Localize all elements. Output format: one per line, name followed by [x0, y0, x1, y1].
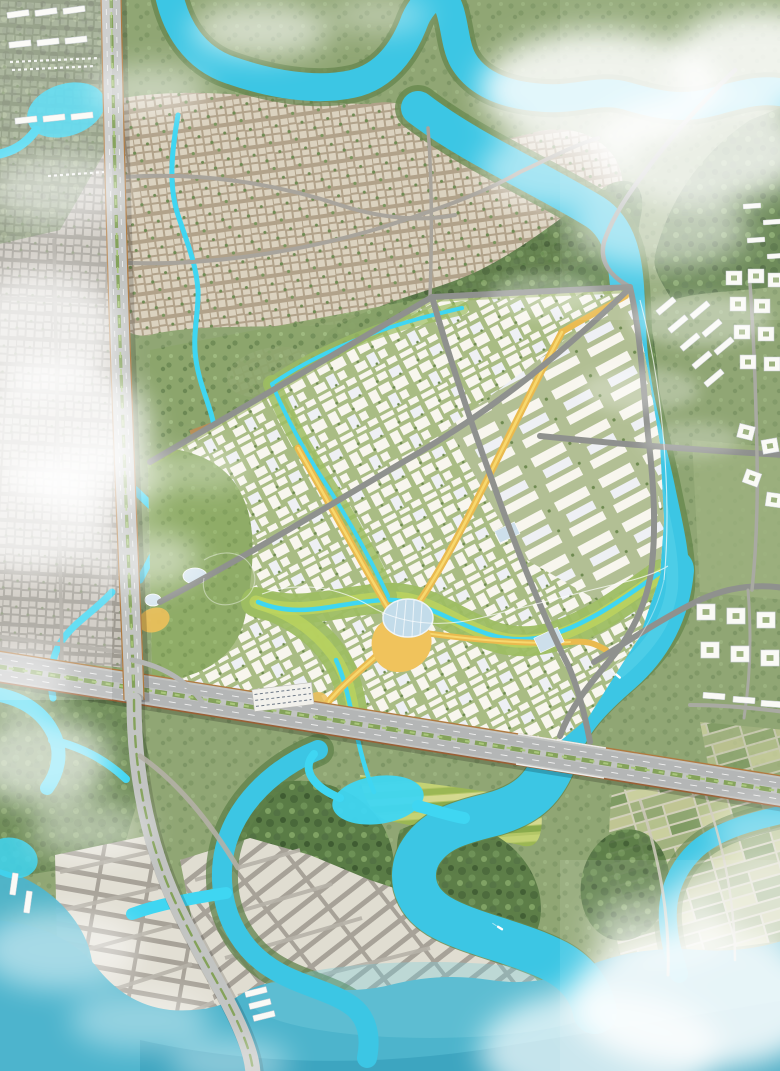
east-bank-slope — [692, 440, 780, 600]
dome-pavilion — [383, 599, 433, 637]
masterplan-rendering — [0, 0, 780, 1071]
masterplan-canvas — [0, 0, 780, 1071]
